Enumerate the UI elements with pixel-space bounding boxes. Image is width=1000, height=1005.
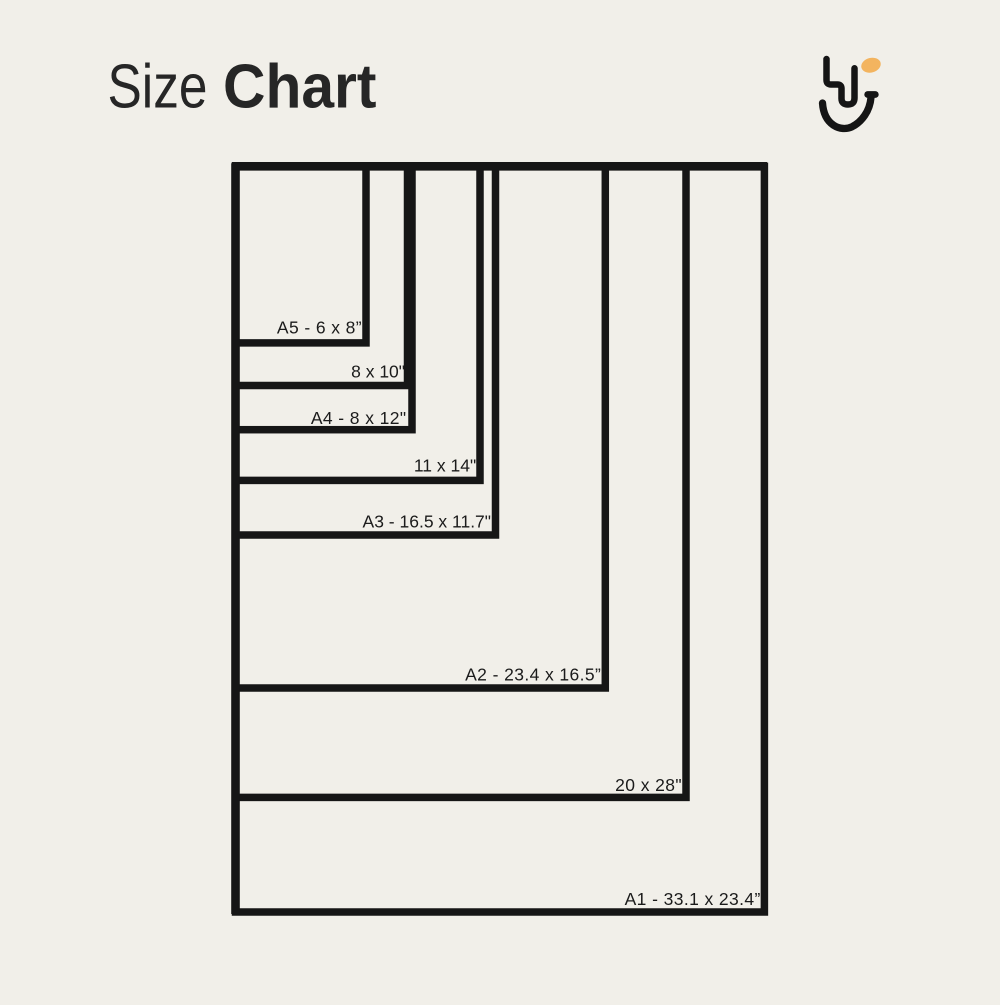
svg-text:A1 - 33.1 x 23.4”: A1 - 33.1 x 23.4” xyxy=(625,889,761,909)
svg-text:A2 - 23.4 x 16.5”: A2 - 23.4 x 16.5” xyxy=(465,665,601,685)
svg-text:8 x 10": 8 x 10" xyxy=(351,361,405,381)
svg-text:A3 - 16.5 x 11.7": A3 - 16.5 x 11.7" xyxy=(363,512,491,532)
svg-text:11 x 14": 11 x 14" xyxy=(414,455,476,475)
svg-text:A4 - 8 x 12": A4 - 8 x 12" xyxy=(311,408,407,428)
svg-text:20 x 28": 20 x 28" xyxy=(615,775,682,795)
svg-text:A5 - 6 x 8”: A5 - 6 x 8” xyxy=(277,318,362,338)
svg-text:Size: Size xyxy=(108,53,208,122)
svg-text:Chart: Chart xyxy=(223,53,377,122)
